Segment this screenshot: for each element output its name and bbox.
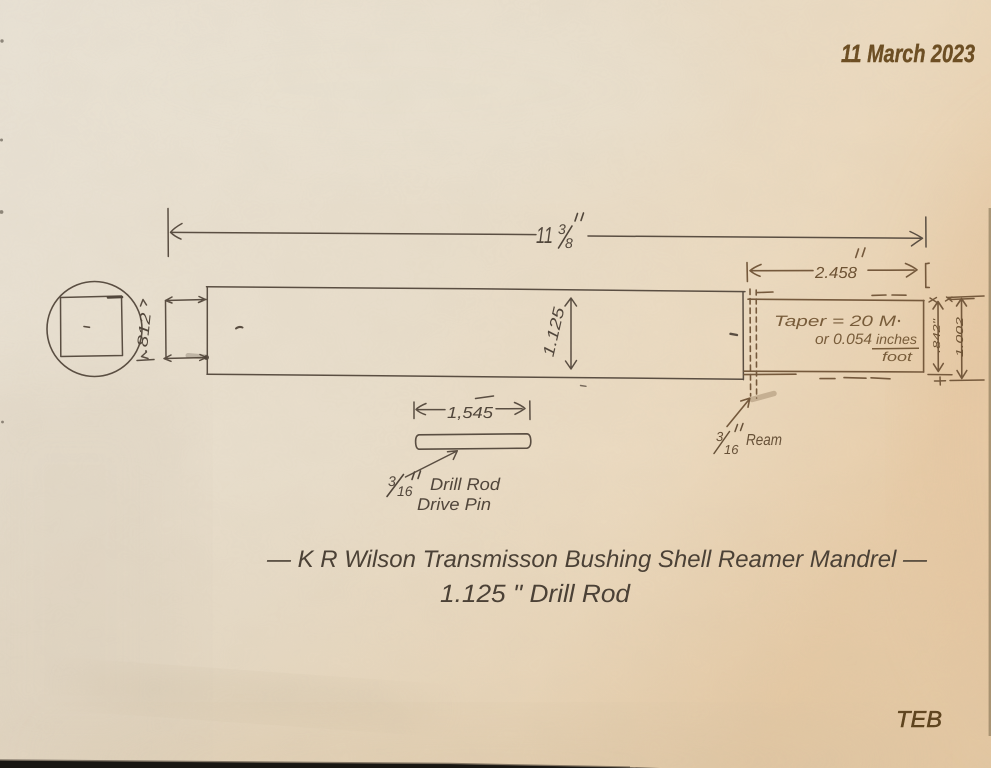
svg-text:or 0.054: or 0.054 xyxy=(815,331,872,348)
svg-text:Drill Rod: Drill Rod xyxy=(430,475,501,494)
svg-text:11: 11 xyxy=(536,222,553,248)
svg-text:16: 16 xyxy=(397,483,413,499)
svg-text:Ream: Ream xyxy=(746,432,782,449)
svg-text:1.002: 1.002 xyxy=(955,316,966,357)
svg-text:inches: inches xyxy=(876,331,917,347)
svg-text:.842": .842" xyxy=(932,318,943,353)
svg-text:16: 16 xyxy=(724,442,739,457)
svg-text:1.125 " Drill Rod: 1.125 " Drill Rod xyxy=(440,580,631,608)
svg-text:8: 8 xyxy=(565,235,573,251)
svg-text:11 March 2023: 11 March 2023 xyxy=(841,40,975,68)
svg-text:1,545: 1,545 xyxy=(447,405,493,422)
svg-text:TEB: TEB xyxy=(896,706,942,732)
svg-text:2.458: 2.458 xyxy=(814,265,857,282)
svg-text:foot: foot xyxy=(882,349,914,364)
svg-text:Drive Pin: Drive Pin xyxy=(417,495,491,514)
svg-text:— K R Wilson Transmisson Bushi: — K R Wilson Transmisson Bushing Shell R… xyxy=(266,546,928,573)
svg-text:Taper = 20 M: Taper = 20 M xyxy=(774,313,897,330)
